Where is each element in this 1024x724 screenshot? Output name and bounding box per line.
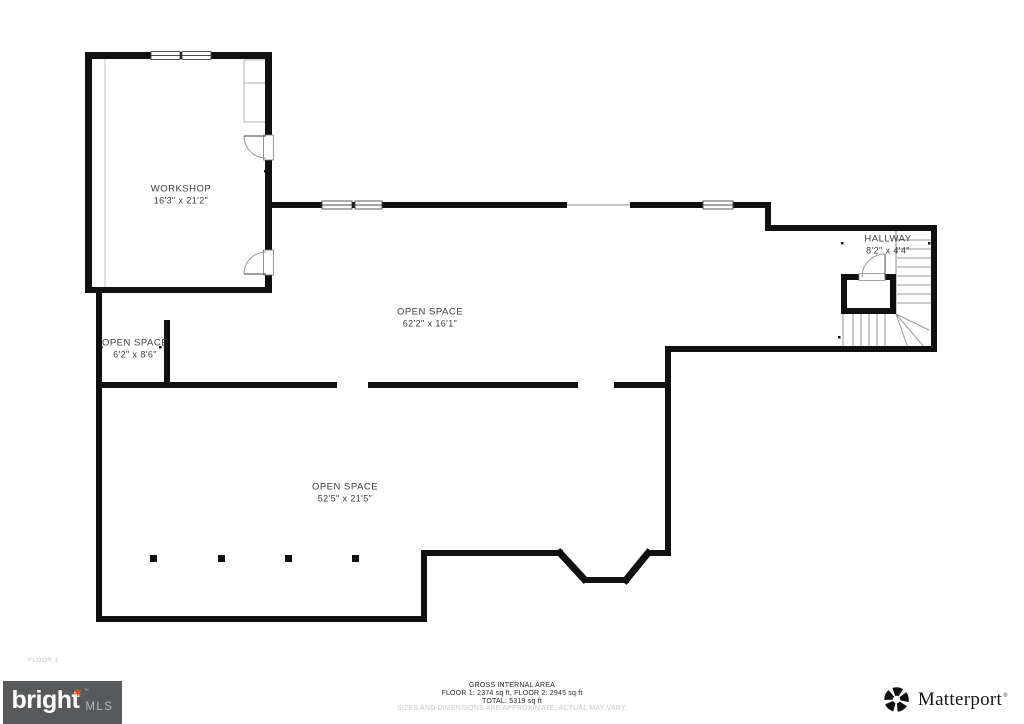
bright-mls-star-icon: ✱	[73, 681, 81, 706]
room-label-workshop: WORKSHOP 16'3" x 21'2"	[151, 184, 211, 207]
registered-symbol: ®	[1003, 693, 1008, 699]
area-floors: FLOOR 1: 2374 sq ft, FLOOR 2: 2945 sq ft	[397, 690, 627, 698]
interior-lines-layer	[105, 59, 630, 287]
room-name: OPEN SPACE	[102, 338, 168, 350]
room-dimensions: 16'3" x 21'2"	[151, 195, 211, 207]
room-dimensions: 8'2" x 4'4"	[864, 245, 911, 257]
area-title: GROSS INTERNAL AREA	[397, 682, 627, 690]
room-dimensions: 6'2" x 8'6"	[102, 349, 168, 361]
windows-layer	[151, 52, 733, 210]
matterport-wordmark: Matterport®	[918, 689, 1008, 711]
area-total: TOTAL: 5319 sq ft	[397, 698, 627, 706]
room-dimensions: 62'2" x 16'1"	[397, 318, 463, 330]
walls-layer	[85, 52, 937, 622]
floor-plan-drawing	[0, 0, 1024, 724]
bright-mls-logo: bright ✱ ™ MLS	[3, 681, 122, 724]
room-name: WORKSHOP	[151, 184, 211, 196]
gross-internal-area-block: GROSS INTERNAL AREA FLOOR 1: 2374 sq ft,…	[397, 682, 627, 713]
room-name: OPEN SPACE	[312, 482, 378, 494]
room-label-open-space-bottom: OPEN SPACE 52'5" x 21'5"	[312, 482, 378, 505]
matterport-logo: Matterport®	[883, 686, 1008, 713]
room-label-open-space-small: OPEN SPACE 6'2" x 8'6"	[102, 338, 168, 361]
room-label-hallway: HALLWAY 8'2" x 4'4"	[864, 234, 911, 257]
floor-number-label: FLOOR 1	[28, 657, 59, 664]
bright-mls-suffix: MLS	[85, 701, 113, 713]
area-disclaimer: SIZES AND DIMENSIONS ARE APPROXIMATE, AC…	[397, 705, 627, 713]
room-label-open-space-middle: OPEN SPACE 62'2" x 16'1"	[397, 307, 463, 330]
room-dimensions: 52'5" x 21'5"	[312, 493, 378, 505]
matterport-pinwheel-icon	[883, 686, 910, 713]
room-name: HALLWAY	[864, 234, 911, 246]
room-name: OPEN SPACE	[397, 307, 463, 319]
bright-mls-wordmark: bright ✱ ™	[12, 688, 80, 713]
floor-plan-page: { "meta": { "floor_label": "FLOOR 1" }, …	[0, 0, 1024, 724]
